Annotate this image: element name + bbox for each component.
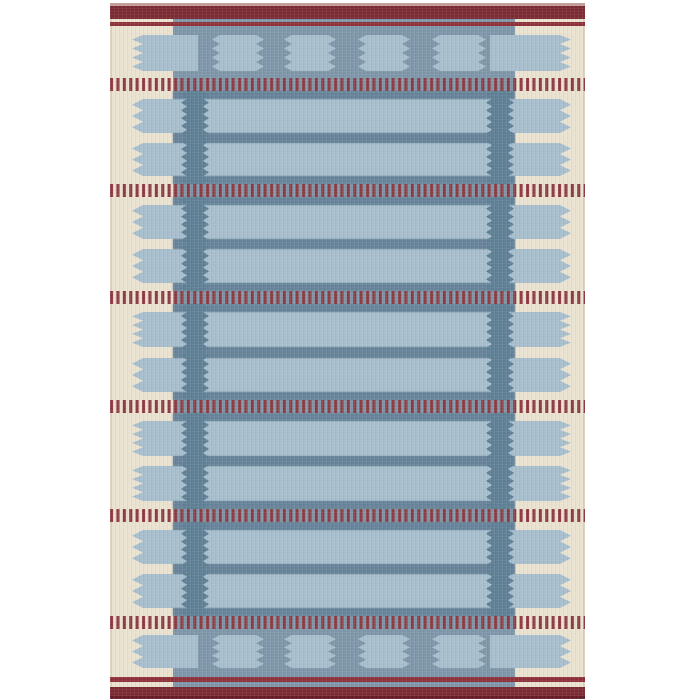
rug-top-red-band [110,6,585,19]
left-selvedge [110,19,112,687]
right-selvedge [583,19,585,687]
rug-bottom-thin-line [110,677,585,682]
rug-bottom-red-band [110,687,585,696]
dark-stripe [173,283,515,291]
dark-stripe [173,456,515,466]
dark-stripe [173,501,515,509]
zigzag-block [432,35,486,71]
dark-stripe [173,239,515,249]
band-panel [173,574,515,608]
dark-stripe [173,197,515,205]
dark-stripe [173,608,515,616]
kilim-rug-image [0,0,700,700]
right-tab [490,35,571,71]
rug-product-photo [0,0,700,700]
band-panel [173,421,515,456]
red-dash-band [110,78,585,91]
red-dash-band [110,291,585,304]
band-panel [173,312,515,347]
dark-stripe [173,413,515,421]
left-tab [132,635,198,668]
band-panel [173,466,515,501]
band-panel [173,99,515,133]
red-dash-band [110,400,585,413]
dark-stripe [173,304,515,312]
zigzag-block [432,635,486,668]
rug [110,3,585,699]
rug-bottom-edge [110,696,585,699]
red-dash-band [110,509,585,522]
right-tab [490,635,571,668]
dark-stripe [173,91,515,99]
dark-stripe [173,392,515,400]
dark-stripe [173,176,515,184]
band-panel [173,143,515,176]
red-dash-band [110,616,585,629]
rug-top-edge [110,3,585,6]
dark-stripe [173,133,515,143]
dark-stripe [173,347,515,358]
rug-top-thin-line [110,22,585,26]
band-panel [173,205,515,239]
band-panel [173,358,515,392]
band-panel [173,249,515,283]
band-panel [173,530,515,564]
dark-stripe [173,522,515,530]
dark-stripe [173,564,515,574]
red-dash-band [110,184,585,197]
